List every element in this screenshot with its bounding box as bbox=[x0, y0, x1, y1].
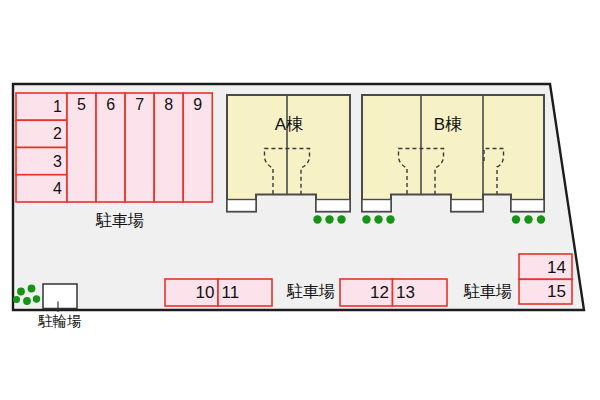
building-b: B棟 bbox=[362, 95, 545, 224]
parking-space-3-number: 3 bbox=[53, 153, 62, 170]
bicycle-parking-label: 駐輪場 bbox=[37, 313, 82, 329]
plant-dot-icon bbox=[28, 285, 36, 293]
parking-space-14-number: 14 bbox=[547, 258, 566, 277]
parking-space-6-number: 6 bbox=[106, 96, 115, 113]
building-a-porch-right bbox=[316, 200, 350, 212]
building-b-label: B棟 bbox=[434, 115, 462, 134]
parking-space-1-number: 1 bbox=[53, 98, 62, 115]
parking-space-4-number: 4 bbox=[53, 180, 62, 197]
parking-space-13-number: 13 bbox=[396, 283, 415, 302]
parking-area-south-east-label: 駐車場 bbox=[463, 283, 512, 300]
parking-space-8-number: 8 bbox=[164, 96, 173, 113]
plant-dot-icon bbox=[13, 296, 20, 303]
parking-space-12-number: 12 bbox=[370, 283, 389, 302]
plant-dot-icon bbox=[23, 297, 31, 305]
plant-dot-icon bbox=[33, 295, 40, 302]
plant-dot-icon bbox=[537, 215, 545, 223]
plant-dot-icon bbox=[512, 215, 520, 223]
plant-dot-icon bbox=[17, 288, 25, 296]
building-a-outline bbox=[227, 95, 350, 212]
site-plan: 1 2 3 4 5 6 7 8 9 駐車場 A棟 B棟 bbox=[0, 0, 600, 400]
plant-dot-icon bbox=[386, 215, 394, 223]
building-b-outline bbox=[362, 95, 544, 212]
plant-dot-icon bbox=[362, 215, 370, 223]
building-a-porch-left bbox=[227, 200, 256, 212]
parking-space-7-number: 7 bbox=[135, 96, 144, 113]
plant-dot-icon bbox=[524, 215, 532, 223]
parking-space-15-number: 15 bbox=[547, 282, 566, 301]
building-b-porch-right bbox=[511, 200, 544, 212]
plant-dot-icon bbox=[337, 215, 345, 223]
parking-space-10-number: 10 bbox=[196, 283, 215, 302]
building-b-porch-middle bbox=[451, 200, 483, 212]
plant-dot-icon bbox=[313, 215, 321, 223]
building-a-label: A棟 bbox=[275, 115, 303, 134]
parking-space-11-number: 11 bbox=[222, 283, 240, 302]
parking-area-south-west-label: 駐車場 bbox=[286, 283, 335, 300]
parking-space-5-number: 5 bbox=[77, 96, 86, 113]
plant-dot-icon bbox=[325, 215, 333, 223]
parking-area-east: 14 15 bbox=[519, 254, 572, 304]
site-plan-canvas: 1 2 3 4 5 6 7 8 9 駐車場 A棟 B棟 bbox=[0, 0, 600, 400]
bicycle-shed bbox=[43, 284, 77, 309]
parking-area-main-label: 駐車場 bbox=[95, 212, 144, 229]
parking-space-9-number: 9 bbox=[193, 96, 202, 113]
building-b-porch-left bbox=[362, 200, 391, 212]
plant-dot-icon bbox=[374, 215, 382, 223]
parking-space-2-number: 2 bbox=[53, 125, 62, 142]
